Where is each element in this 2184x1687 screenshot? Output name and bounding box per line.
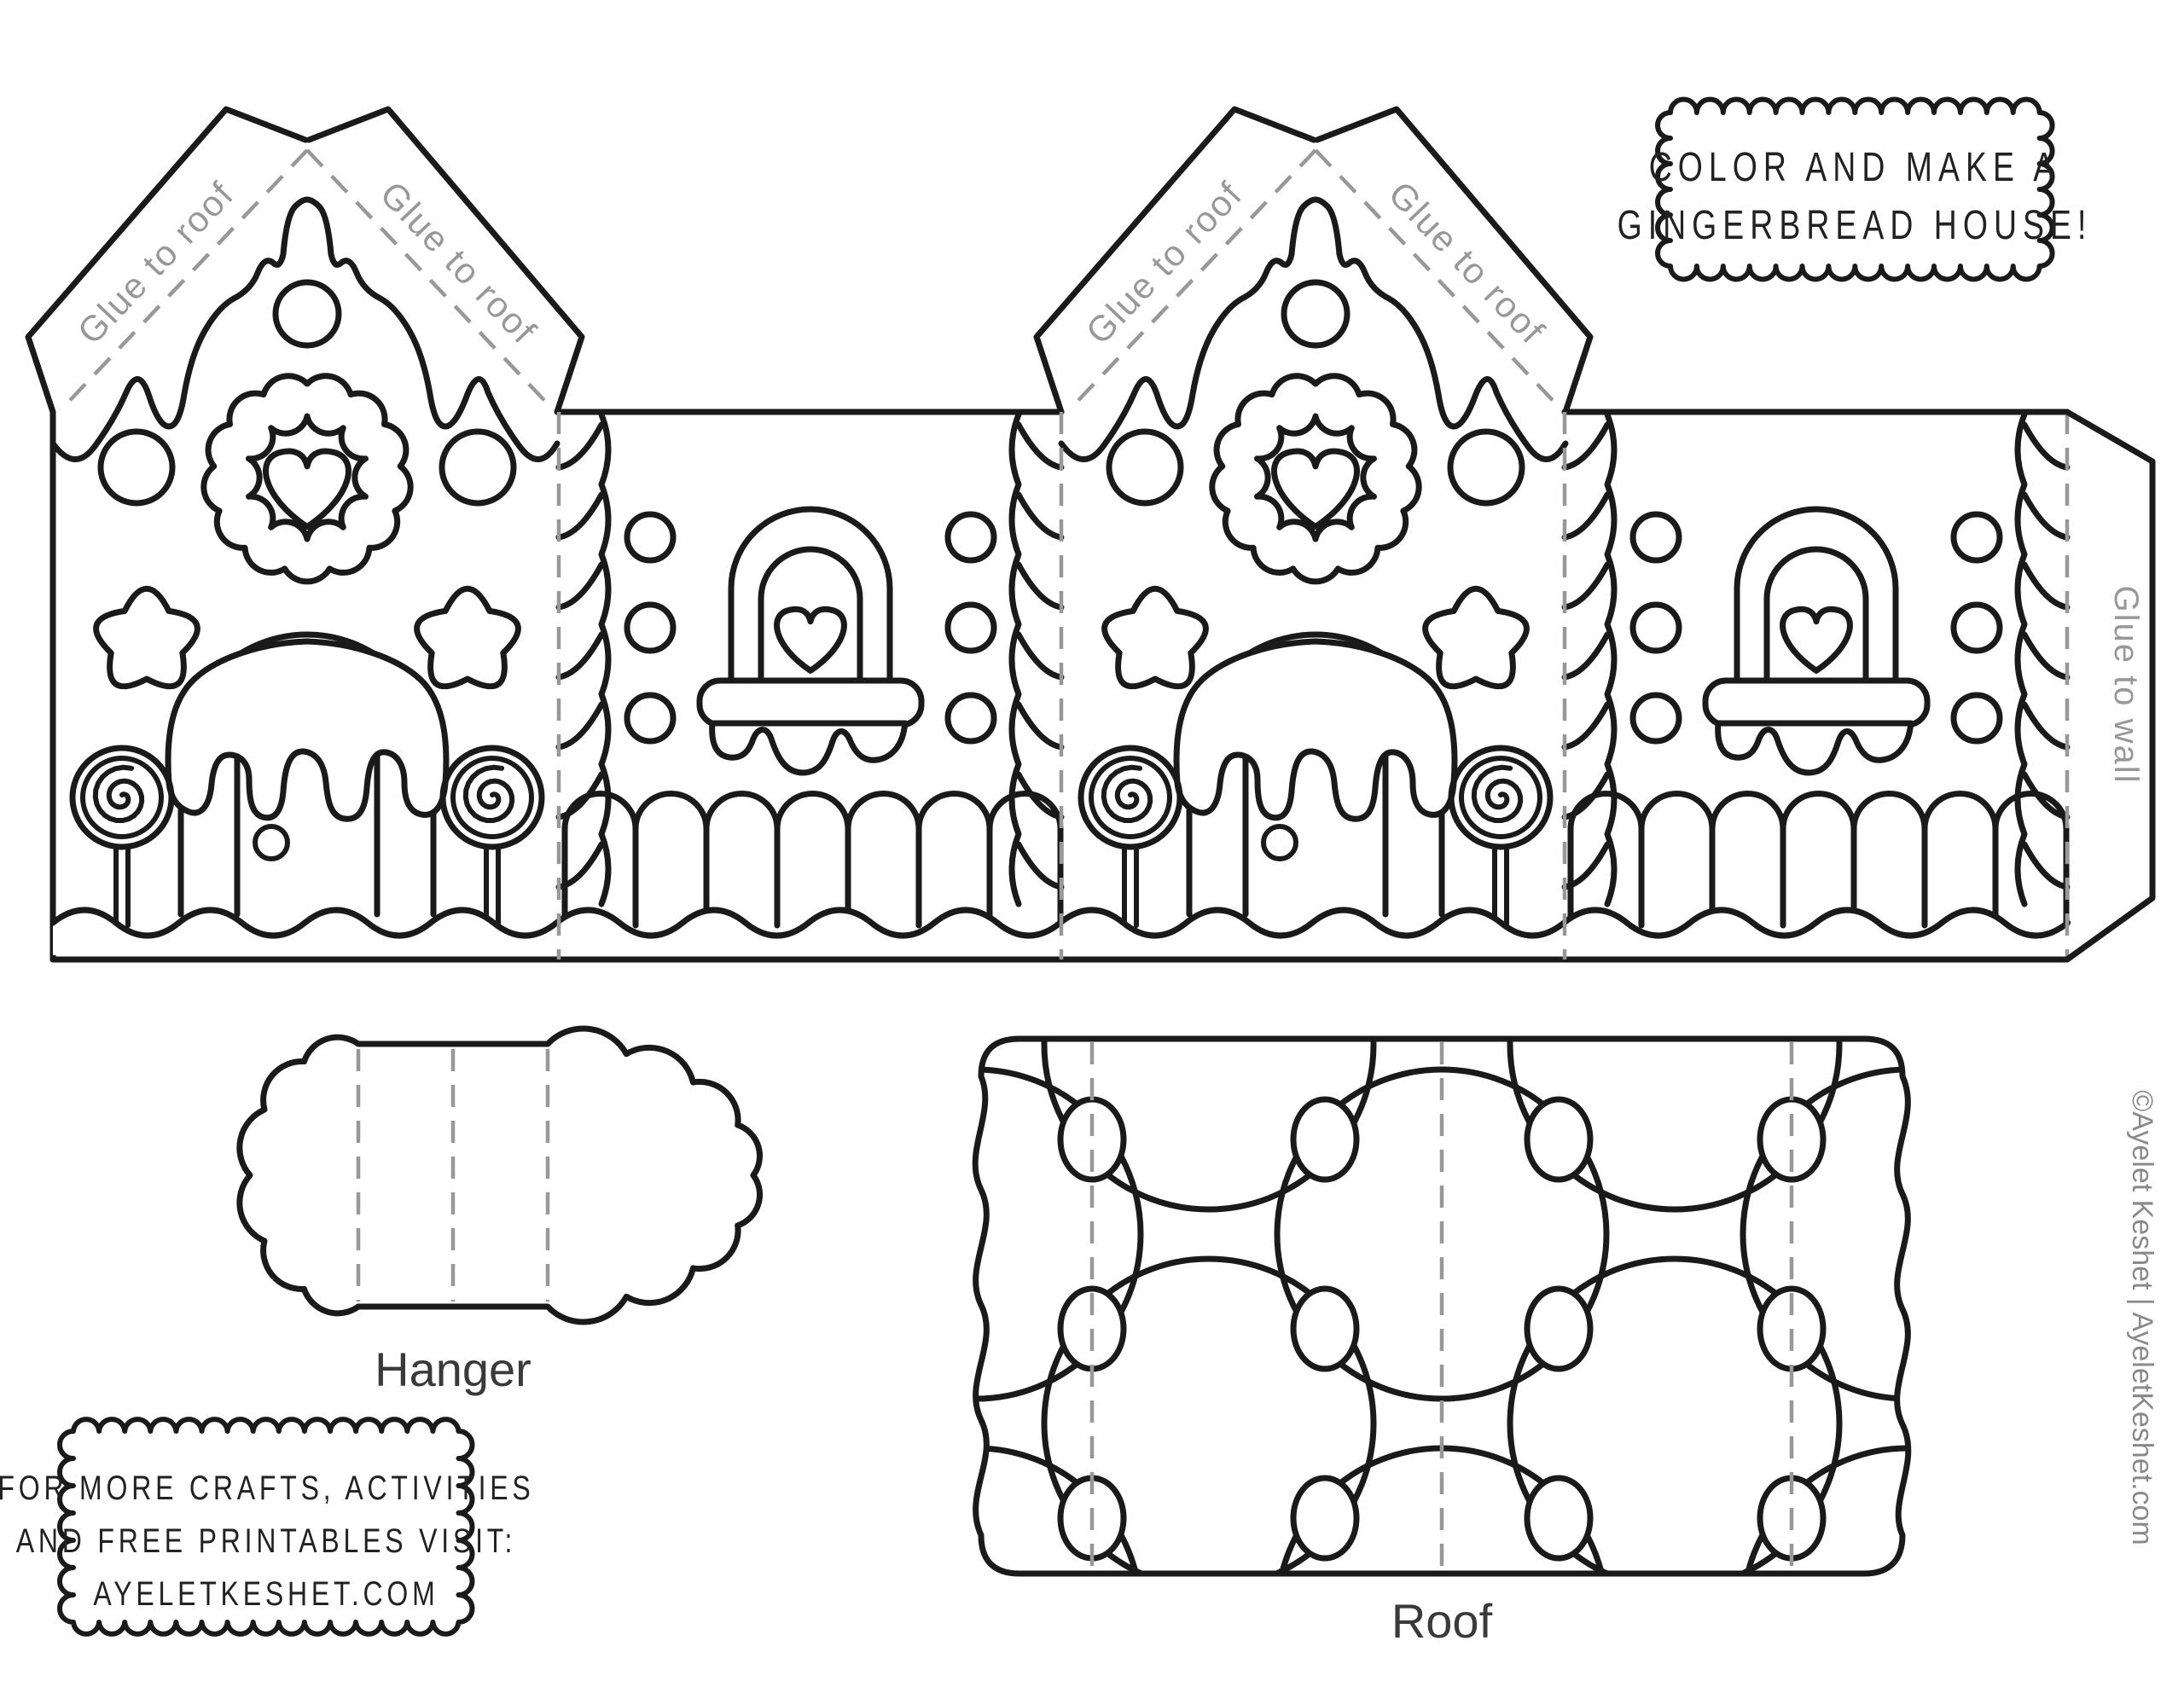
instruction-box: COLOR AND MAKE A GINGERBREAD HOUSE! [1618, 100, 2093, 280]
wreath-ornament [204, 376, 410, 582]
house-facade-2 [1037, 109, 1590, 925]
wall-section-2 [1565, 412, 2067, 925]
candy-dot [101, 432, 172, 503]
window-sill [700, 681, 921, 725]
instruction-line-2: GINGERBREAD HOUSE! [1618, 203, 2093, 249]
heart-icon [266, 451, 349, 527]
printable-sheet: Glue to roof Glue to roof [0, 0, 2184, 1687]
promo-line-3: AYELETKESHET.COM [93, 1574, 439, 1613]
door-icing [168, 641, 446, 819]
window-sill-icing [712, 723, 905, 773]
gable-ornament-circle [276, 282, 339, 345]
hanger-label: Hanger [375, 1342, 531, 1396]
copyright-credit: ©Ayelet Keshet | AyeletKeshet.com [2126, 1090, 2158, 1545]
window-arch-outer [731, 509, 890, 684]
roof-scale-pattern [811, 880, 2072, 1687]
promo-line-2: AND FREE PRINTABLES VISIT: [16, 1522, 517, 1560]
heart-icon [777, 609, 845, 670]
promo-line-1: FOR MORE CRAFTS, ACTIVITIES [0, 1469, 535, 1507]
lollipop-icon [73, 748, 171, 925]
instruction-line-1: COLOR AND MAKE A [1649, 145, 2061, 191]
roof-label: Roof [1391, 1594, 1493, 1648]
promo-box: FOR MORE CRAFTS, ACTIVITIES AND FREE PRI… [0, 1419, 535, 1634]
fence [565, 794, 1060, 926]
roof-piece: Roof [811, 880, 2072, 1687]
candy-dot [442, 432, 514, 503]
hanger-outline [240, 1029, 760, 1322]
template-artwork: Glue to roof Glue to roof [0, 0, 2184, 1687]
house-facade: Glue to roof Glue to roof [28, 109, 582, 925]
lollipop-icon [443, 748, 542, 925]
hanger-piece: Hanger [240, 1029, 760, 1396]
fold-line-gable-left [61, 150, 307, 410]
fold-line-gable-right [307, 150, 554, 410]
door-knob [255, 826, 288, 859]
wall-section [559, 412, 1061, 925]
glue-to-wall-label: Glue to wall [2107, 586, 2145, 785]
